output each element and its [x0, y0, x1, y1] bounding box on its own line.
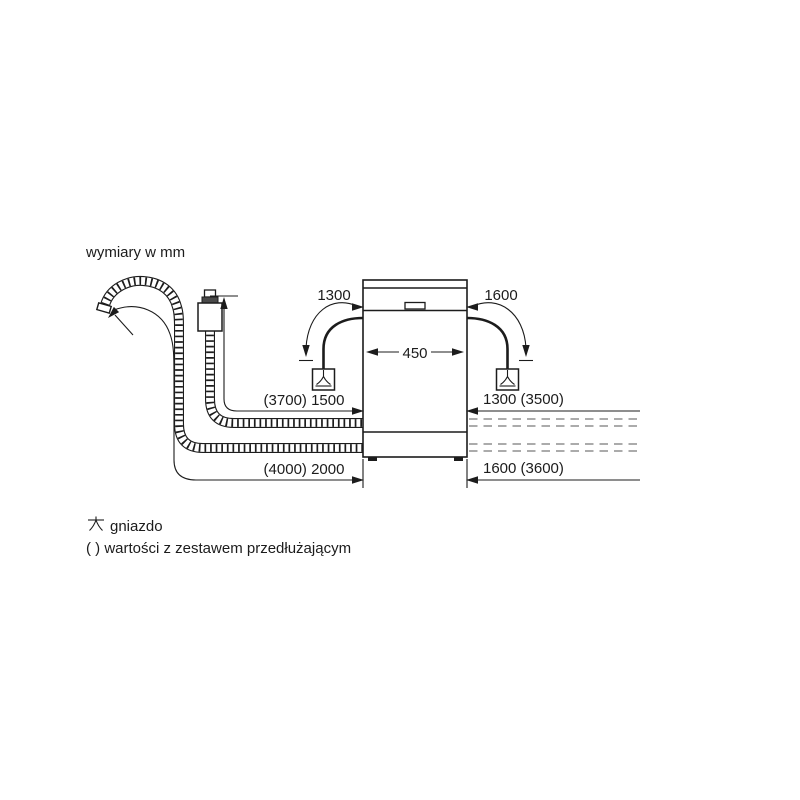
control-panel-handle-icon	[405, 303, 425, 310]
dimension-supply-left: (3700) 1500	[210, 296, 364, 415]
dimension-label-1600: 1600	[484, 287, 517, 304]
dimension-socket-left: 1300	[299, 287, 364, 361]
power-cord-right	[467, 318, 508, 369]
hoses-dashed-right	[469, 419, 639, 451]
dimension-label-1300-3500: 1300 (3500)	[483, 391, 564, 408]
dimension-label-1300: 1300	[317, 287, 350, 304]
legend-parentheses-label: ( ) wartości z zestawem przedłużającym	[86, 540, 351, 557]
installation-diagram-page: wymiary w mm	[0, 0, 800, 800]
dimension-supply-right: 1300 (3500)	[466, 391, 640, 415]
appliance-foot-right	[454, 457, 463, 461]
dimension-socket-right: 1600	[466, 287, 533, 361]
dimension-drain-right: 1600 (3600)	[466, 460, 640, 484]
dimension-label-450: 450	[402, 345, 427, 362]
socket-right-icon	[497, 369, 519, 390]
socket-icon	[88, 517, 104, 531]
legend-socket-label: gniazdo	[110, 518, 163, 535]
dimension-label-4000-2000: (4000) 2000	[264, 461, 345, 478]
socket-left-icon	[313, 369, 335, 390]
dimension-label-3700-1500: (3700) 1500	[264, 392, 345, 409]
dimension-label-1600-3600: 1600 (3600)	[483, 460, 564, 477]
legend: gniazdo ( ) wartości z zestawem przedłuż…	[86, 517, 351, 558]
page-title: wymiary w mm	[85, 244, 185, 261]
dishwasher-outline	[363, 280, 467, 461]
power-cord-left	[324, 318, 364, 369]
appliance-foot-left	[368, 457, 377, 461]
installation-diagram: wymiary w mm	[0, 0, 800, 800]
